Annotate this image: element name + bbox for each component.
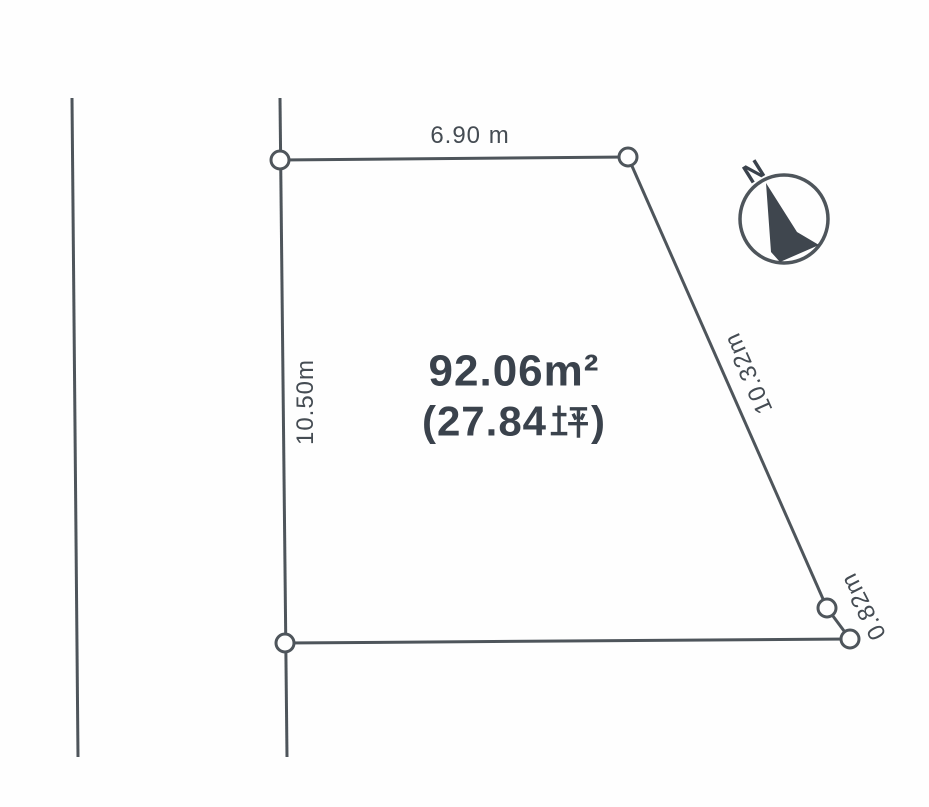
road-edge-line [72,98,78,757]
north-arrow-icon [766,183,819,262]
vertex-marker-top-right [619,148,637,166]
plot-area-sqm: 92.06m² [429,347,600,396]
plot-area-tsubo-prefix: (27.84 [422,397,547,444]
plot-side-right-diagonal [628,157,827,608]
plot-side-top [280,157,628,160]
vertex-marker-bottom-left [276,634,294,652]
dimension-label-left: 10.50m [292,359,320,445]
vertex-marker-bottom-right [841,630,859,648]
left-boundary-line [280,98,287,757]
vertex-marker-top-left [271,151,289,169]
plot-area-tsubo: (27.84 ) [422,397,606,445]
tsubo-character [550,399,588,439]
plot-side-bottom [285,639,850,643]
dimension-label-top: 6.90 m [430,122,509,150]
plot-area-tsubo-suffix: ) [591,397,606,444]
plot-area-block: 92.06m² (27.84 ) [422,347,606,446]
vertex-marker-right-lower [818,599,836,617]
land-plot-diagram: 6.90 m 10.50m 10.32m 0.82m 92.06m² (27.8… [0,0,929,807]
